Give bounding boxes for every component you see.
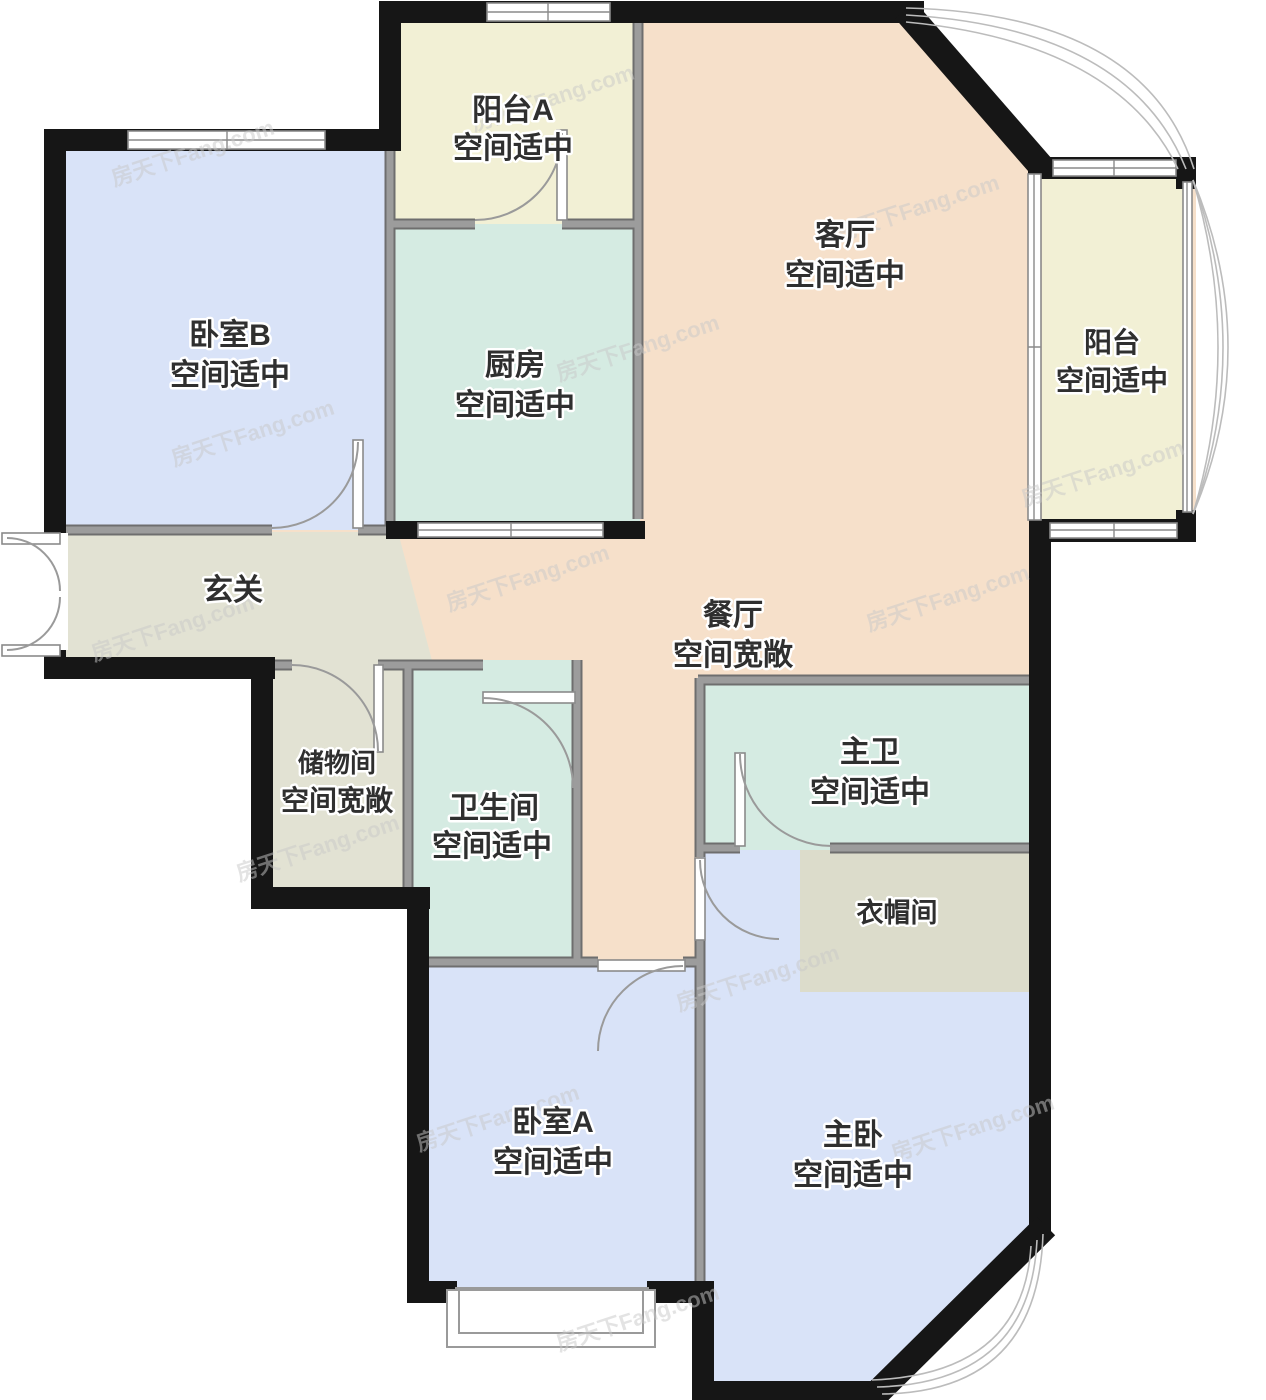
label-balcony-a-note: 空间适中 bbox=[453, 132, 573, 165]
label-master-bath-name: 主卫 bbox=[840, 736, 900, 769]
wall-storage-bottom bbox=[251, 887, 430, 909]
label-bedroom-b-note: 空间适中 bbox=[170, 359, 290, 392]
label-balcony-right-note: 空间适中 bbox=[1056, 364, 1168, 396]
window-balcony-right-bottom bbox=[1050, 523, 1177, 538]
label-bedroom-b-name: 卧室B bbox=[189, 318, 271, 352]
label-cloakroom-name: 衣帽间 bbox=[857, 897, 938, 928]
label-bedroom-a-note: 空间适中 bbox=[493, 1146, 613, 1179]
window-balcony-a-top bbox=[487, 3, 610, 21]
label-bathroom-name: 卫生间 bbox=[449, 792, 539, 825]
wall-master-bottom bbox=[692, 1381, 888, 1400]
wall-left-upper bbox=[44, 129, 66, 535]
label-living-note: 空间适中 bbox=[785, 259, 905, 292]
window-balcony-right-top bbox=[1053, 160, 1176, 176]
label-balcony-a-name: 阳台A bbox=[472, 93, 554, 127]
label-living-name: 客厅 bbox=[815, 218, 875, 252]
label-dining-name: 餐厅 bbox=[703, 599, 763, 632]
label-master-note: 空间适中 bbox=[793, 1159, 913, 1192]
window-balcony-right-glass bbox=[1183, 182, 1192, 512]
label-kitchen-name: 厨房 bbox=[485, 349, 545, 382]
label-bathroom-note: 空间适中 bbox=[432, 830, 552, 863]
wall-balcony-a-left bbox=[379, 1, 401, 151]
floorplan-canvas: 房天下Fang.com 房天下Fang.com 房天下Fang.com 房天下F… bbox=[0, 0, 1266, 1400]
label-dining-note: 空间宽敞 bbox=[673, 638, 794, 672]
label-kitchen-note: 空间适中 bbox=[455, 389, 575, 422]
wall-right bbox=[1029, 519, 1051, 1236]
label-master-name: 主卧 bbox=[823, 1119, 883, 1152]
label-storage-name: 储物间 bbox=[298, 748, 376, 778]
wall-bedroom-a-left bbox=[407, 887, 429, 1303]
label-storage-note: 空间宽敞 bbox=[281, 784, 394, 816]
label-bedroom-a-name: 卧室A bbox=[512, 1105, 594, 1139]
label-master-bath-note: 空间适中 bbox=[810, 776, 930, 809]
window-living-to-balcony bbox=[1028, 174, 1041, 520]
wall-hallway-bottom bbox=[44, 657, 275, 679]
label-hallway-name: 玄关 bbox=[203, 573, 263, 607]
label-balcony-right-name: 阳台 bbox=[1084, 326, 1140, 358]
floorplan-page: 房天下Fang.com 房天下Fang.com 房天下Fang.com 房天下F… bbox=[0, 0, 1266, 1400]
wall-top bbox=[379, 1, 924, 23]
window-kitchen-bottom bbox=[418, 523, 603, 537]
